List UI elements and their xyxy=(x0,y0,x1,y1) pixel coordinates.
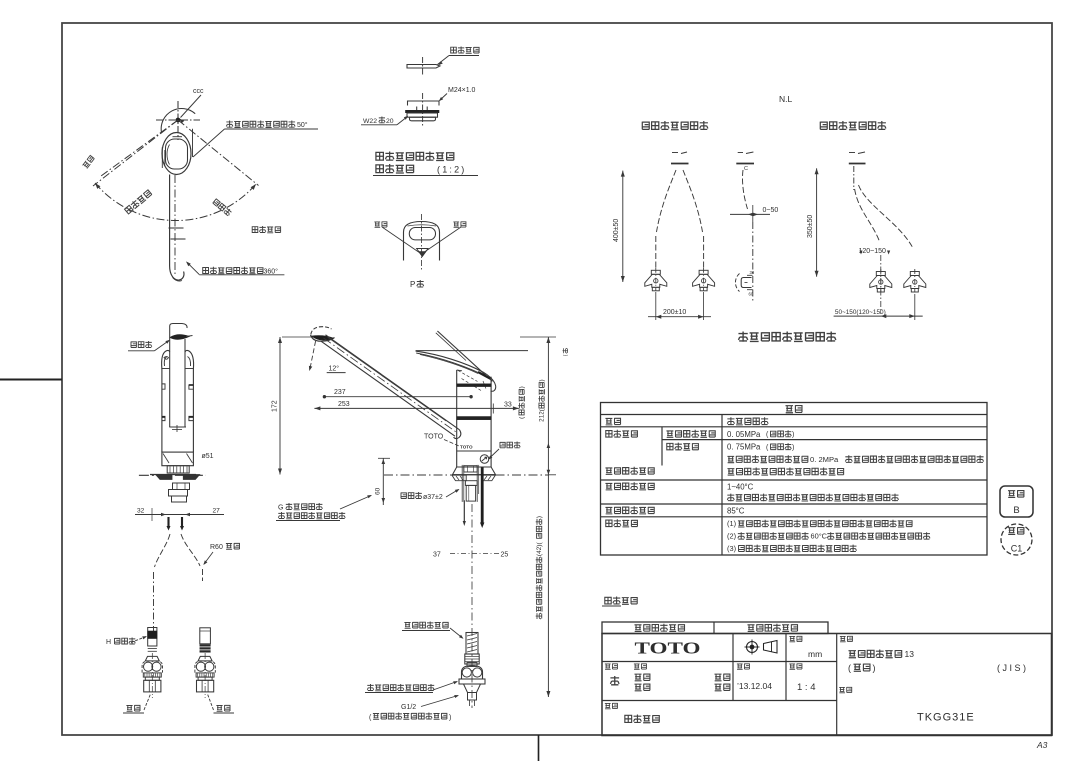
svg-text:85°C: 85°C xyxy=(727,506,745,515)
svg-text:TOTO: TOTO xyxy=(460,445,473,450)
svg-text:M24×1.0: M24×1.0 xyxy=(448,87,476,94)
svg-text:(: ( xyxy=(563,354,569,356)
svg-text:33: 33 xyxy=(504,402,512,409)
svg-text:): ) xyxy=(539,379,546,381)
svg-text:(1:2): (1:2) xyxy=(437,165,467,175)
svg-text:25: 25 xyxy=(501,552,509,559)
svg-text:ø51: ø51 xyxy=(202,453,214,460)
svg-text:): ) xyxy=(873,663,876,673)
svg-text:): ) xyxy=(449,715,451,722)
svg-text:ccc: ccc xyxy=(193,88,204,95)
svg-text:13: 13 xyxy=(905,649,915,659)
svg-text:(: ( xyxy=(848,663,851,673)
svg-text:G1/2: G1/2 xyxy=(401,704,416,711)
svg-text:200±10: 200±10 xyxy=(663,309,686,316)
svg-text:0~50: 0~50 xyxy=(763,207,779,214)
svg-text:TKGG31E: TKGG31E xyxy=(917,712,975,724)
svg-text:H: H xyxy=(106,639,111,646)
svg-text:50~150(120~150): 50~150(120~150) xyxy=(835,309,886,316)
svg-text:B: B xyxy=(1013,505,1019,516)
svg-text:): ) xyxy=(536,516,543,518)
svg-text:37: 37 xyxy=(433,552,441,559)
svg-text:(: ( xyxy=(519,416,526,419)
svg-text:(: ( xyxy=(766,432,769,439)
svg-text:27: 27 xyxy=(213,508,221,515)
svg-text:(: ( xyxy=(766,444,769,451)
svg-text:1 : 4: 1 : 4 xyxy=(797,682,816,693)
svg-text:0. 2MPa: 0. 2MPa xyxy=(810,455,839,464)
svg-text:TOTO: TOTO xyxy=(424,434,444,441)
svg-text:50°: 50° xyxy=(297,121,308,129)
svg-text:350±50: 350±50 xyxy=(807,215,814,238)
svg-text:A3: A3 xyxy=(1036,740,1048,750)
svg-text:0. 75MPa: 0. 75MPa xyxy=(727,443,761,452)
svg-text:(42)(: (42)( xyxy=(536,542,543,557)
svg-text:32: 32 xyxy=(137,508,145,515)
svg-text:P: P xyxy=(410,280,415,289)
svg-text:60°C: 60°C xyxy=(811,532,828,541)
svg-text:12°: 12° xyxy=(329,365,340,373)
svg-text:ø37±2: ø37±2 xyxy=(423,494,443,501)
svg-text:): ) xyxy=(792,444,794,451)
svg-text:253: 253 xyxy=(338,401,350,408)
svg-text:’13.12.04: ’13.12.04 xyxy=(737,681,772,691)
svg-text:(JIS): (JIS) xyxy=(997,663,1029,673)
svg-text:20: 20 xyxy=(386,118,394,125)
svg-text:400±50: 400±50 xyxy=(613,219,620,242)
svg-text:): ) xyxy=(519,386,526,388)
svg-text:120~150: 120~150 xyxy=(859,248,887,255)
svg-text:1~40°C: 1~40°C xyxy=(727,483,754,492)
svg-text:(3): (3) xyxy=(727,544,736,553)
svg-text:(: ( xyxy=(369,715,372,722)
svg-text:C: C xyxy=(744,166,748,172)
svg-text:172: 172 xyxy=(272,400,279,412)
svg-text:60: 60 xyxy=(749,292,754,297)
svg-text:60: 60 xyxy=(375,487,382,495)
svg-text:(1): (1) xyxy=(727,519,736,528)
svg-text:30: 30 xyxy=(750,270,755,275)
svg-text:212(: 212( xyxy=(539,408,546,422)
svg-text:360°: 360° xyxy=(264,268,279,276)
svg-text:N.L: N.L xyxy=(779,94,793,104)
svg-text:mm: mm xyxy=(808,649,822,659)
svg-text:TOTO: TOTO xyxy=(635,639,701,658)
svg-text:(2): (2) xyxy=(727,532,736,541)
svg-text:G: G xyxy=(278,505,283,512)
svg-text:237: 237 xyxy=(334,389,346,396)
svg-text:W22: W22 xyxy=(363,118,377,125)
svg-text:R60: R60 xyxy=(210,544,223,551)
svg-text:C1: C1 xyxy=(1011,544,1023,554)
svg-text:0. 05MPa: 0. 05MPa xyxy=(727,430,761,439)
svg-text:): ) xyxy=(792,432,794,439)
